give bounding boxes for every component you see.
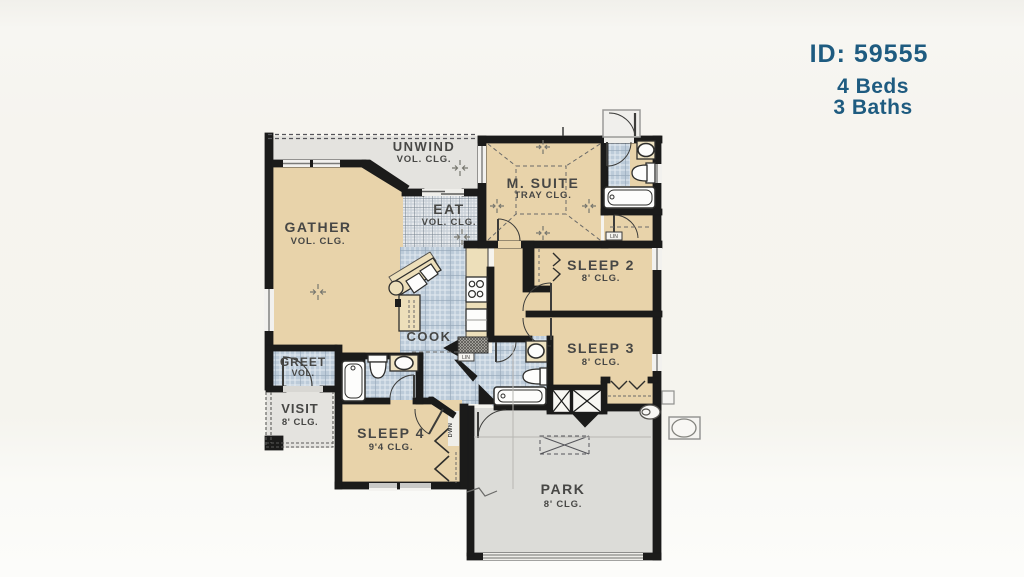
svg-text:GATHER: GATHER <box>284 219 351 235</box>
svg-text:8' CLG.: 8' CLG. <box>582 357 620 368</box>
svg-text:9'4 CLG.: 9'4 CLG. <box>369 442 414 453</box>
svg-text:VOL. CLG.: VOL. CLG. <box>291 236 346 247</box>
svg-text:ID: 59555: ID: 59555 <box>810 40 929 68</box>
svg-text:SLEEP 4: SLEEP 4 <box>357 425 425 441</box>
svg-text:VISIT: VISIT <box>281 401 319 416</box>
svg-text:PARK: PARK <box>541 481 586 497</box>
svg-text:SLEEP 2: SLEEP 2 <box>567 257 635 273</box>
svg-text:VOL.: VOL. <box>291 368 314 378</box>
svg-text:M. SUITE: M. SUITE <box>507 175 580 191</box>
svg-text:EAT: EAT <box>433 201 464 217</box>
svg-text:8' CLG.: 8' CLG. <box>582 273 620 284</box>
svg-text:GREET: GREET <box>280 355 326 369</box>
svg-text:8' CLG.: 8' CLG. <box>544 499 582 510</box>
svg-text:COOK: COOK <box>407 329 452 344</box>
svg-text:4 Beds: 4 Beds <box>837 75 909 98</box>
svg-text:VOL. CLG.: VOL. CLG. <box>422 217 477 228</box>
svg-text:3 Baths: 3 Baths <box>833 96 912 119</box>
svg-text:LIN: LIN <box>610 234 618 240</box>
svg-text:TRAY CLG.: TRAY CLG. <box>514 190 571 201</box>
svg-text:VOL. CLG.: VOL. CLG. <box>397 154 452 165</box>
svg-text:LIN: LIN <box>462 355 470 361</box>
svg-text:8' CLG.: 8' CLG. <box>282 417 318 428</box>
svg-text:UNWIND: UNWIND <box>393 139 455 154</box>
svg-text:DWN: DWN <box>448 423 454 438</box>
svg-text:SLEEP 3: SLEEP 3 <box>567 340 635 356</box>
